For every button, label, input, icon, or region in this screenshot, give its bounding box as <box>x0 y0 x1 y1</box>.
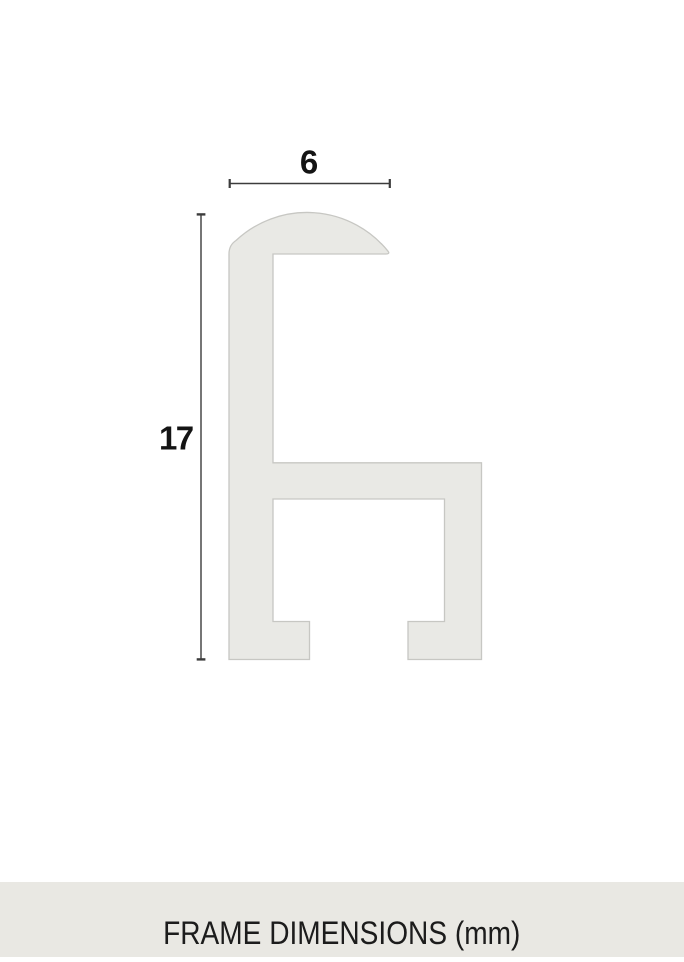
svg-text:6: 6 <box>300 144 318 181</box>
svg-text:17: 17 <box>159 419 193 456</box>
